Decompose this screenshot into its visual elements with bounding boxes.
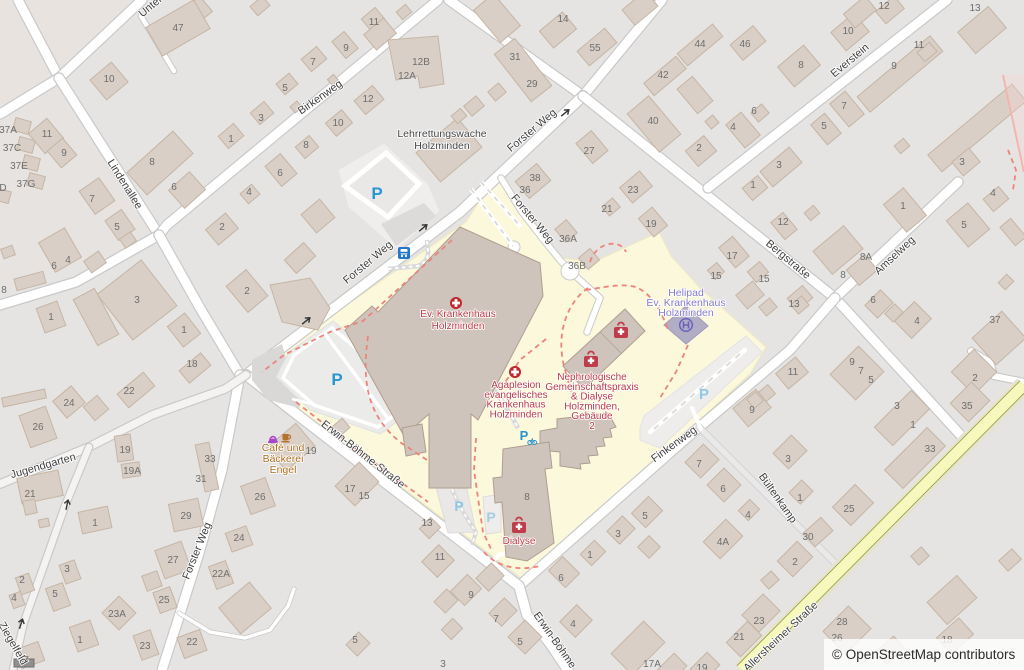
svg-text:31: 31 <box>195 474 207 485</box>
svg-text:23: 23 <box>753 616 765 627</box>
svg-text:Dialyse: Dialyse <box>503 536 536 547</box>
svg-text:10: 10 <box>103 74 115 85</box>
svg-text:1: 1 <box>48 312 54 323</box>
svg-text:13: 13 <box>969 3 981 14</box>
svg-text:10: 10 <box>332 118 344 129</box>
svg-text:8: 8 <box>303 140 309 151</box>
svg-text:3: 3 <box>894 401 900 412</box>
svg-text:1: 1 <box>77 635 83 646</box>
svg-text:8: 8 <box>524 492 530 503</box>
svg-text:9: 9 <box>891 61 897 72</box>
svg-text:17: 17 <box>344 484 356 495</box>
svg-text:8A: 8A <box>860 252 873 263</box>
svg-text:17: 17 <box>726 251 738 262</box>
svg-text:23: 23 <box>627 185 639 196</box>
svg-text:9: 9 <box>343 43 349 54</box>
svg-text:23: 23 <box>139 641 151 652</box>
svg-text:12: 12 <box>777 217 789 228</box>
svg-text:Lehrrettungswache: Lehrrettungswache <box>397 128 486 140</box>
svg-text:P: P <box>331 370 342 389</box>
svg-text:4: 4 <box>65 255 71 266</box>
svg-text:4: 4 <box>570 619 576 630</box>
svg-text:19: 19 <box>305 446 317 457</box>
svg-text:11: 11 <box>435 552 446 563</box>
svg-text:40: 40 <box>647 116 659 127</box>
svg-text:Holzminden: Holzminden <box>432 321 485 332</box>
svg-text:37A: 37A <box>0 125 17 136</box>
svg-text:21: 21 <box>601 204 613 215</box>
svg-text:4A: 4A <box>717 537 730 548</box>
svg-text:22: 22 <box>123 386 135 397</box>
svg-text:D: D <box>0 183 7 194</box>
svg-text:4: 4 <box>914 316 920 327</box>
svg-text:5: 5 <box>282 83 288 94</box>
svg-text:7: 7 <box>858 366 864 377</box>
svg-text:28: 28 <box>836 617 848 628</box>
svg-text:18: 18 <box>186 359 198 370</box>
svg-text:6: 6 <box>751 106 757 117</box>
svg-text:37C: 37C <box>3 143 21 154</box>
svg-text:6: 6 <box>277 168 283 179</box>
svg-text:8: 8 <box>149 157 155 168</box>
svg-text:1: 1 <box>587 550 593 561</box>
svg-text:Engel: Engel <box>270 464 297 476</box>
svg-text:5: 5 <box>114 222 120 233</box>
svg-text:12: 12 <box>878 1 890 12</box>
svg-text:7: 7 <box>310 57 316 68</box>
svg-text:P: P <box>520 428 529 443</box>
svg-text:12A: 12A <box>398 71 416 82</box>
svg-text:6: 6 <box>51 261 57 272</box>
svg-text:25: 25 <box>158 595 170 606</box>
svg-text:9: 9 <box>849 357 855 368</box>
svg-text:2: 2 <box>244 286 250 297</box>
svg-text:7: 7 <box>841 101 847 112</box>
svg-text:5: 5 <box>961 220 967 231</box>
svg-text:2: 2 <box>696 143 702 154</box>
svg-text:11: 11 <box>914 40 925 51</box>
svg-text:44: 44 <box>694 39 706 50</box>
svg-text:5: 5 <box>642 511 648 522</box>
svg-text:4: 4 <box>990 188 996 199</box>
svg-text:2: 2 <box>19 575 25 586</box>
svg-text:19A: 19A <box>123 466 141 477</box>
svg-text:36: 36 <box>519 185 531 196</box>
svg-text:9: 9 <box>468 590 474 601</box>
svg-text:3: 3 <box>785 454 791 465</box>
svg-text:23A: 23A <box>108 609 126 620</box>
svg-text:5: 5 <box>52 589 58 600</box>
svg-text:6: 6 <box>870 295 876 306</box>
svg-text:33: 33 <box>924 444 936 455</box>
svg-text:37E: 37E <box>10 161 28 172</box>
svg-text:7: 7 <box>696 459 702 470</box>
svg-text:Holzminden: Holzminden <box>490 409 543 420</box>
svg-text:46: 46 <box>739 39 751 50</box>
svg-text:1: 1 <box>900 201 906 212</box>
svg-text:47: 47 <box>172 23 184 34</box>
svg-text:36A: 36A <box>559 234 577 245</box>
svg-text:3: 3 <box>959 157 965 168</box>
svg-text:6: 6 <box>171 182 177 193</box>
svg-text:6: 6 <box>558 573 564 584</box>
svg-text:26: 26 <box>254 492 266 503</box>
svg-text:35: 35 <box>961 401 973 412</box>
svg-text:10: 10 <box>842 26 854 37</box>
svg-text:Ev. Krankenhaus: Ev. Krankenhaus <box>420 309 495 320</box>
svg-text:5: 5 <box>352 635 358 646</box>
svg-text:7: 7 <box>89 194 95 205</box>
svg-text:42: 42 <box>657 70 669 81</box>
svg-text:P: P <box>486 509 495 525</box>
svg-text:Holzminden: Holzminden <box>658 307 714 319</box>
svg-text:11: 11 <box>788 367 799 378</box>
svg-text:3: 3 <box>258 113 264 124</box>
svg-text:19: 19 <box>696 663 708 670</box>
svg-text:27: 27 <box>583 146 595 157</box>
svg-text:37: 37 <box>989 315 1001 326</box>
svg-text:P: P <box>699 386 709 403</box>
svg-text:29: 29 <box>180 511 192 522</box>
svg-text:22A: 22A <box>212 569 230 580</box>
svg-text:3: 3 <box>440 659 446 670</box>
svg-text:27: 27 <box>167 555 179 566</box>
svg-text:1: 1 <box>181 325 187 336</box>
svg-text:7: 7 <box>23 655 29 666</box>
svg-text:29: 29 <box>526 79 538 90</box>
svg-text:21: 21 <box>24 489 36 500</box>
svg-text:26: 26 <box>32 422 44 433</box>
svg-text:15: 15 <box>758 274 770 285</box>
svg-text:1: 1 <box>92 518 98 529</box>
svg-text:24: 24 <box>63 398 75 409</box>
svg-text:5: 5 <box>821 121 827 132</box>
svg-text:3: 3 <box>776 160 782 171</box>
svg-text:15: 15 <box>710 271 722 282</box>
svg-text:3: 3 <box>615 529 621 540</box>
svg-text:3: 3 <box>64 564 70 575</box>
svg-text:21: 21 <box>733 632 745 643</box>
svg-text:31: 31 <box>509 52 521 63</box>
svg-text:37G: 37G <box>17 179 36 190</box>
svg-text:22: 22 <box>186 637 198 648</box>
svg-text:1: 1 <box>910 420 916 431</box>
svg-text:8: 8 <box>840 270 846 281</box>
svg-text:19: 19 <box>645 219 657 230</box>
svg-text:© OpenStreetMap contributors: © OpenStreetMap contributors <box>832 647 1016 662</box>
svg-text:14: 14 <box>557 14 569 25</box>
svg-text:1: 1 <box>797 493 803 504</box>
svg-text:P: P <box>454 498 463 514</box>
svg-text:3: 3 <box>134 295 140 306</box>
svg-text:5: 5 <box>517 637 523 648</box>
svg-text:4: 4 <box>745 510 751 521</box>
svg-text:P: P <box>371 184 382 203</box>
svg-text:4: 4 <box>730 122 736 133</box>
svg-text:2: 2 <box>219 222 225 233</box>
svg-text:13: 13 <box>421 518 433 529</box>
svg-text:8: 8 <box>1 285 7 296</box>
svg-text:4: 4 <box>246 187 252 198</box>
svg-text:25: 25 <box>843 504 855 515</box>
svg-text:1: 1 <box>750 180 756 191</box>
svg-text:36B: 36B <box>568 261 586 272</box>
svg-text:6: 6 <box>720 484 726 495</box>
svg-text:7: 7 <box>493 614 499 625</box>
svg-text:1: 1 <box>228 134 234 145</box>
svg-text:12B: 12B <box>412 57 430 68</box>
svg-text:2: 2 <box>589 421 595 432</box>
svg-text:12: 12 <box>362 94 374 105</box>
svg-text:55: 55 <box>589 43 601 54</box>
svg-text:2: 2 <box>972 373 978 384</box>
svg-text:38: 38 <box>529 173 541 184</box>
svg-text:2: 2 <box>792 557 798 568</box>
svg-text:11: 11 <box>369 17 380 28</box>
svg-text:5: 5 <box>868 375 874 386</box>
svg-text:33: 33 <box>204 454 216 465</box>
svg-text:9: 9 <box>61 148 67 159</box>
svg-text:30: 30 <box>802 532 814 543</box>
svg-text:24: 24 <box>233 533 245 544</box>
svg-text:13: 13 <box>788 299 800 310</box>
svg-text:11: 11 <box>42 129 53 140</box>
svg-text:9: 9 <box>749 405 755 416</box>
svg-text:4: 4 <box>11 593 17 604</box>
svg-text:Holzminden: Holzminden <box>414 140 470 152</box>
svg-text:15: 15 <box>358 491 370 502</box>
svg-text:19: 19 <box>119 445 131 456</box>
svg-text:17A: 17A <box>643 659 661 670</box>
svg-text:8: 8 <box>798 60 804 71</box>
